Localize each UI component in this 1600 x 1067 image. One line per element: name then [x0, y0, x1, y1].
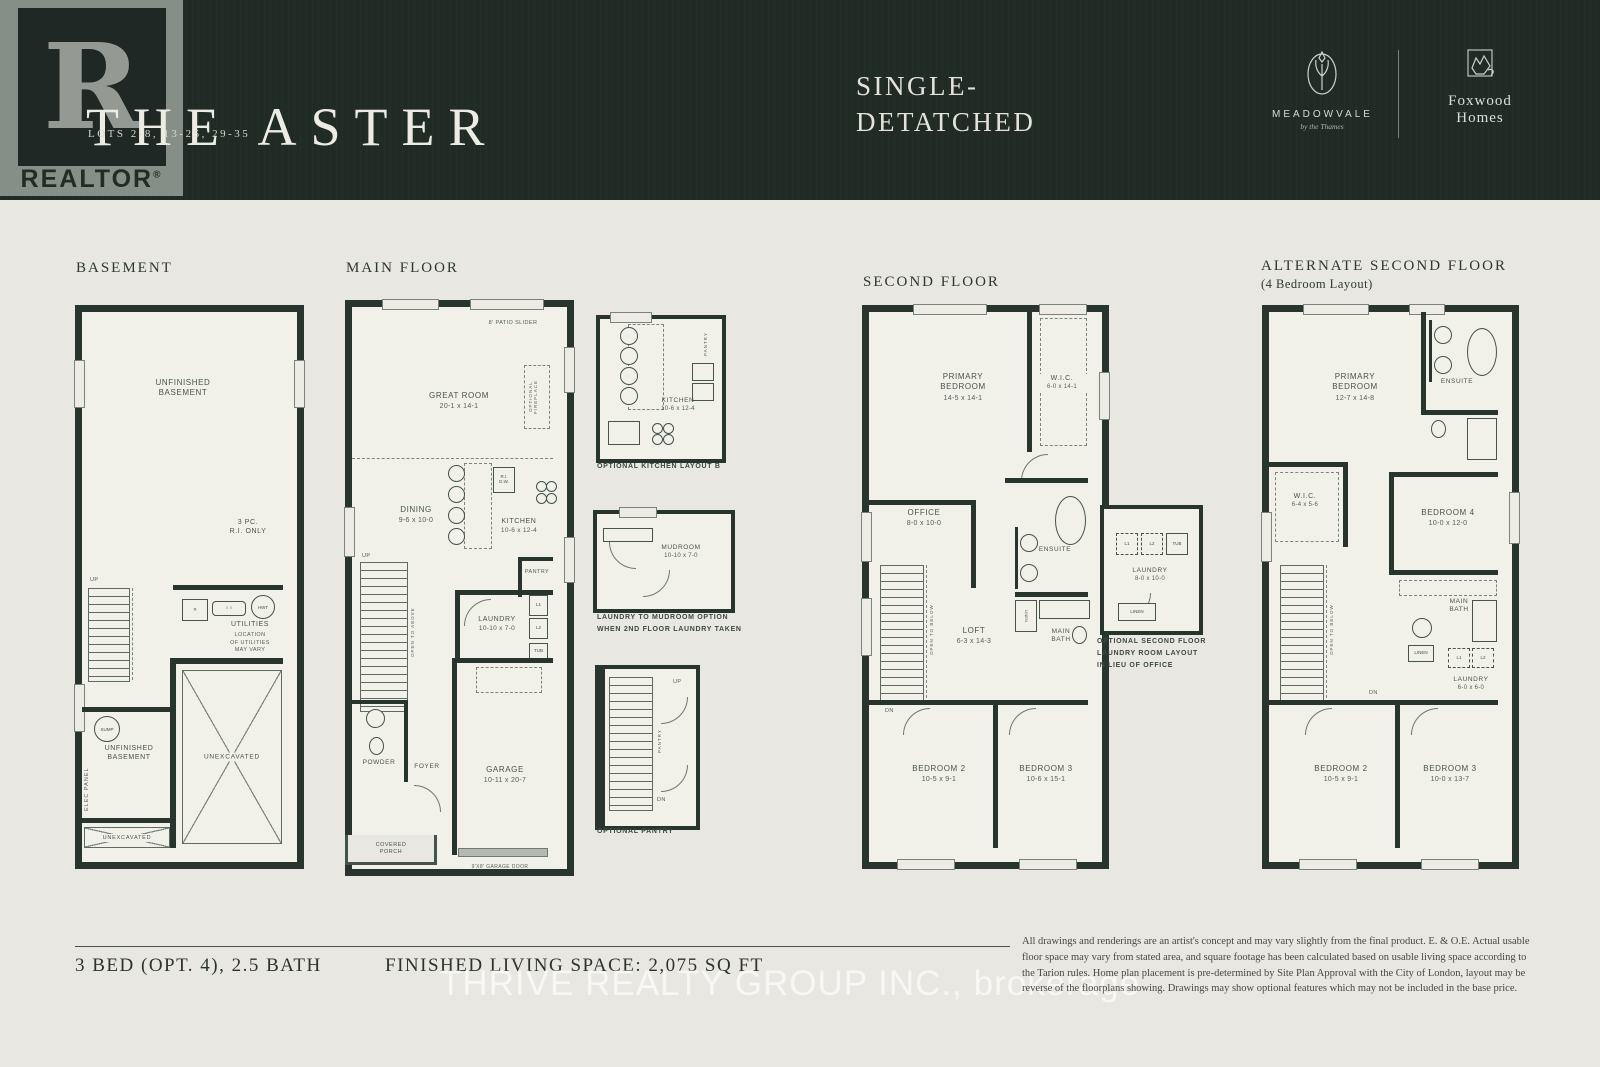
door-arc	[1009, 708, 1036, 735]
stairs-up-label: UP	[673, 679, 681, 687]
room-label-bedroom4: BEDROOM 410-0 x 12-0	[1407, 508, 1489, 528]
main-floor-plan: 8' PATIO SLIDER GREAT ROOM20-1 x 14-1 OP…	[345, 300, 574, 876]
room-label-bedroom3: BEDROOM 310-0 x 13-7	[1411, 764, 1489, 784]
room-label-unfinished-lower: UNFINISHED BASEMENT	[88, 744, 170, 762]
stove-burner-icon	[652, 423, 663, 434]
door-arc	[1305, 708, 1332, 735]
wall	[1015, 592, 1088, 597]
foxwood-wordmark: FoxwoodHomes	[1425, 93, 1535, 126]
stairs	[880, 565, 924, 705]
door-arc	[903, 708, 930, 735]
wall	[452, 658, 553, 663]
window	[1039, 304, 1087, 315]
realtor-wordmark: REALTOR®	[0, 165, 183, 194]
wall	[1389, 472, 1498, 477]
pantry-label: PANTRY	[703, 327, 708, 361]
washer-l1: L1	[1116, 533, 1138, 555]
room-label-bedroom2: BEDROOM 210-5 x 9-1	[893, 764, 985, 784]
stove-burner-icon	[546, 493, 557, 504]
door-arc	[609, 542, 636, 569]
stairs	[1280, 565, 1324, 705]
stove-burner-icon	[663, 423, 674, 434]
stool-icon	[620, 387, 638, 405]
stairs	[609, 677, 653, 811]
room-label-great-room: GREAT ROOM20-1 x 14-1	[410, 391, 508, 411]
lots-label: LOTS 2-8, 13-25, 29-35	[88, 128, 250, 140]
door-arc	[661, 765, 688, 792]
second-floor-plan: PRIMARY BEDROOM14-5 x 14-1 W.I.C.6-0 x 1…	[862, 305, 1109, 869]
stool-icon	[448, 486, 465, 503]
wall	[1027, 312, 1032, 452]
wall	[455, 590, 460, 662]
window	[1299, 859, 1357, 870]
sump-icon: SUMP	[94, 716, 120, 742]
room-label-office: OFFICE8-0 x 10-0	[893, 508, 955, 528]
window	[610, 312, 652, 323]
pantry-label: PANTRY	[520, 569, 554, 577]
window	[861, 512, 872, 562]
laundry-tub-icon: ○ ○	[212, 601, 246, 616]
optional-laundry-caption: OPTIONAL SECOND FLOOR LAUNDRY ROOM LAYOU…	[1097, 636, 1206, 672]
wall	[971, 500, 976, 588]
disclaimer-text: All drawings and renderings are an artis…	[1022, 934, 1534, 997]
second-floor-heading: SECOND FLOOR	[863, 274, 1000, 291]
window	[564, 537, 575, 583]
brokerage-watermark: THRIVE REALTY GROUP INC., brokerage	[440, 964, 1120, 1004]
room-label-ensuite: ENSUITE	[1033, 546, 1077, 554]
room-label-laundry-opt: LAUNDRY8-0 x 10-0	[1122, 567, 1178, 584]
wall	[1005, 478, 1088, 483]
window	[294, 360, 305, 408]
wall	[452, 658, 457, 855]
meadowvale-tagline: by the Thames	[1272, 122, 1372, 131]
wall	[1421, 410, 1498, 415]
room-label-garage: GARAGE10-11 x 20-7	[468, 765, 542, 785]
wall	[993, 700, 998, 848]
dryer-l2: L2	[1141, 533, 1163, 555]
ceiling-break-line	[352, 458, 553, 459]
meadowvale-wordmark: MEADOWVALE	[1272, 109, 1372, 120]
door-arc	[464, 599, 491, 626]
wall	[173, 585, 283, 590]
wall	[1269, 700, 1498, 705]
door-arc	[1021, 454, 1048, 481]
alt-second-floor-heading: ALTERNATE SECOND FLOOR (4 Bedroom Layout…	[1261, 258, 1507, 292]
room-label-kitchen: KITCHEN10-6 x 12-4	[490, 517, 548, 536]
window	[1019, 859, 1077, 870]
kitchen-island	[464, 463, 492, 549]
washer-l1: L1	[529, 595, 548, 616]
dryer-l2: L2	[529, 618, 548, 639]
room-label-primary-bedroom: PRIMARY BEDROOM14-5 x 14-1	[913, 372, 1013, 403]
linen-closet: LINEN	[1408, 645, 1434, 662]
room-label-bedroom2: BEDROOM 210-5 x 9-1	[1295, 764, 1387, 784]
meadowvale-flower-icon	[1301, 48, 1343, 100]
room-label-bedroom3: BEDROOM 310-6 x 15-1	[1007, 764, 1085, 784]
basement-heading: BASEMENT	[76, 260, 173, 277]
stairs-up-label: UP	[362, 553, 370, 561]
window	[897, 859, 955, 870]
bathtub-oval-icon	[1055, 496, 1086, 545]
vanity-wall	[1429, 320, 1432, 382]
hwt-icon: HWT	[251, 595, 275, 619]
wall	[1421, 312, 1426, 412]
stool-icon	[448, 507, 465, 524]
stairs	[360, 562, 408, 712]
bathtub-icon	[1039, 600, 1090, 619]
wall	[1389, 570, 1498, 575]
stove-burner-icon	[546, 481, 557, 492]
wall	[352, 700, 408, 704]
toilet-icon	[1072, 626, 1087, 644]
utilities-label: UTILITIES	[215, 620, 285, 629]
room-label-laundry: LAUNDRY6-0 x 6-0	[1445, 676, 1497, 693]
washer-icon: ✕	[182, 599, 208, 621]
fridge-icon	[692, 363, 714, 381]
door-arc	[1411, 708, 1438, 735]
stairs-dn-label: DN	[657, 797, 666, 805]
header-band: R REALTOR® THE ASTER LOTS 2-8, 13-25, 29…	[0, 0, 1600, 200]
optional-pantry-inset: UP PANTRY DN	[595, 665, 700, 830]
window	[74, 360, 85, 408]
linen-closet: LINEN	[1118, 603, 1156, 621]
dwelling-type: SINGLE- DETATCHED	[856, 68, 1035, 141]
sink-icon	[1020, 564, 1038, 582]
window	[913, 304, 987, 315]
window	[1421, 859, 1479, 870]
unexcavated-area: UNEXCAVATED	[182, 670, 282, 844]
sink-icon	[1434, 356, 1452, 374]
linen-closet: LINEN	[1015, 600, 1037, 632]
window	[619, 507, 657, 518]
washer-l1: L1	[1448, 648, 1470, 668]
room-label-wic: W.I.C.6-0 x 14-1	[1037, 374, 1087, 392]
wall	[1395, 700, 1400, 848]
wall	[869, 500, 975, 505]
vanity-wall	[1015, 527, 1018, 589]
wall	[170, 658, 176, 848]
stair-rail	[1326, 565, 1327, 703]
room-label-kitchen-b: KITCHEN10-6 x 12-4	[650, 397, 706, 414]
room-label-ensuite: ENSUITE	[1433, 378, 1481, 386]
stairs-dn-label: DN	[885, 708, 894, 716]
room-label-unfinished-basement: UNFINISHED BASEMENT	[137, 378, 229, 399]
window	[564, 347, 575, 393]
toilet-icon	[1431, 420, 1446, 438]
sink-icon	[1412, 618, 1432, 638]
room-label-foyer: FOYER	[404, 763, 450, 771]
foxwood-fox-icon	[1460, 48, 1500, 88]
wall	[1343, 462, 1348, 547]
stairs-up-label: UP	[90, 577, 98, 585]
wall	[1389, 472, 1394, 572]
laundry-tub: TUB	[1166, 533, 1188, 555]
window	[344, 507, 355, 557]
window	[1509, 492, 1520, 544]
unexcavated-area-small: UNEXCAVATED	[84, 827, 170, 848]
garage-door-label: 9'X8' GARAGE DOOR	[450, 864, 550, 871]
optional-pantry-caption: OPTIONAL PANTRY	[597, 826, 673, 838]
bench-icon	[603, 528, 653, 542]
open-to-below-label: OPEN TO BELOW	[929, 590, 934, 670]
garage-door	[458, 848, 548, 857]
window	[1409, 304, 1445, 315]
dryer-l2: L2	[1472, 648, 1494, 668]
stair-rail	[926, 565, 927, 703]
optional-laundry-inset: L1 L2 TUB LAUNDRY8-0 x 10-0 LINEN	[1100, 505, 1203, 635]
sink-icon	[1434, 326, 1452, 344]
mudroom-caption: LAUNDRY TO MUDROOM OPTION WHEN 2ND FLOOR…	[597, 612, 742, 636]
room-label-mudroom: MUDROOM10-10 x 7-0	[649, 544, 713, 561]
dishwasher-roughin: R.I. D.W.	[493, 467, 515, 493]
elec-panel-label: ELEC PANEL	[84, 758, 90, 820]
meadowvale-logo: MEADOWVALE by the Thames	[1272, 48, 1372, 131]
window	[1261, 512, 1272, 562]
window	[1099, 372, 1110, 420]
window	[861, 598, 872, 656]
room-label-rough-in: 3 PC. R.I. ONLY	[218, 518, 278, 536]
wall	[595, 665, 605, 830]
open-to-above-label: OPEN TO ABOVE	[410, 597, 415, 667]
room-label-powder: POWDER	[352, 759, 406, 767]
stair-rail	[132, 588, 133, 680]
toilet-icon	[369, 737, 384, 755]
foxwood-logo: FoxwoodHomes	[1425, 48, 1535, 126]
bathtub-oval-icon	[1467, 328, 1497, 376]
kitchen-b-caption: OPTIONAL KITCHEN LAYOUT B	[597, 461, 721, 473]
stool-icon	[448, 465, 465, 482]
wall	[82, 818, 170, 823]
door-arc	[643, 570, 670, 597]
room-label-loft: LOFT6-3 x 14-3	[939, 626, 1009, 646]
brand-divider	[1398, 50, 1399, 138]
optional-fireplace-label: OPTIONAL FIREPLACE	[528, 369, 538, 425]
window	[1303, 304, 1369, 315]
room-label-wic: W.I.C.6-4 x 5-6	[1277, 492, 1333, 510]
room-label-primary-bedroom: PRIMARY BEDROOM12-7 x 14-8	[1307, 372, 1403, 403]
door-arc	[661, 697, 688, 724]
wall	[82, 707, 172, 712]
shower-icon	[1472, 600, 1497, 642]
window	[382, 299, 439, 310]
mudroom-inset: MUDROOM10-10 x 7-0	[593, 510, 735, 613]
wall	[1269, 462, 1347, 467]
wall	[518, 557, 553, 561]
door-arc	[414, 785, 441, 812]
garage-step	[476, 667, 542, 693]
patio-slider-label: 8' PATIO SLIDER	[480, 320, 546, 328]
stool-icon	[620, 327, 638, 345]
stove-burner-icon	[652, 434, 663, 445]
sink-icon	[366, 709, 385, 728]
bed-bath-summary: 3 BED (OPT. 4), 2.5 BATH	[75, 955, 322, 977]
stool-icon	[448, 528, 465, 545]
stairs-dn-label: DN	[1369, 690, 1378, 698]
stove-burner-icon	[663, 434, 674, 445]
basement-plan: UNFINISHED BASEMENT 3 PC. R.I. ONLY UP ✕…	[75, 305, 304, 869]
brochure-page: R REALTOR® THE ASTER LOTS 2-8, 13-25, 29…	[0, 0, 1600, 1067]
open-to-below-label: OPEN TO BELOW	[1329, 590, 1334, 670]
stool-icon	[620, 367, 638, 385]
main-floor-heading: MAIN FLOOR	[346, 260, 459, 277]
alt-second-floor-plan: PRIMARY BEDROOM12-7 x 14-8 ENSUITE W.I.C…	[1262, 305, 1519, 869]
stool-icon	[620, 347, 638, 365]
shower-icon	[1467, 418, 1497, 460]
covered-porch: COVERED PORCH	[345, 835, 437, 865]
utilities-note: LOCATION OF UTILITIES MAY VARY	[215, 632, 285, 655]
stairs	[88, 588, 130, 682]
footer-divider	[75, 946, 1010, 947]
optional-kitchen-inset: PANTRY KITCHEN10-6 x 12-4	[596, 315, 726, 463]
counter-icon	[608, 421, 640, 445]
wall	[869, 700, 1088, 705]
wall	[170, 658, 283, 664]
closet-shelving	[1399, 580, 1497, 596]
window	[470, 299, 544, 310]
